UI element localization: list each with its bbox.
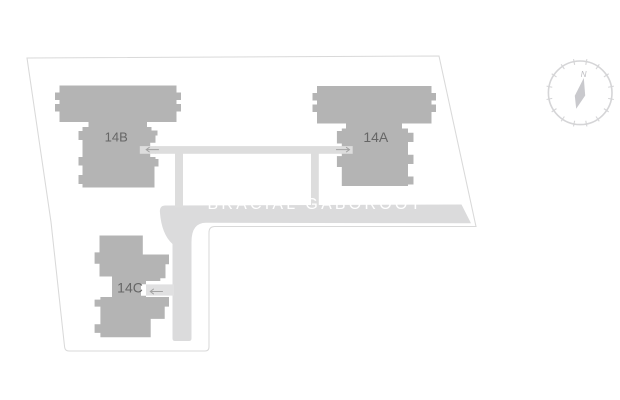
svg-text:14A: 14A (363, 129, 389, 145)
svg-text:14B: 14B (105, 130, 128, 145)
svg-text:N: N (581, 70, 587, 79)
svg-text:14C: 14C (117, 280, 143, 296)
svg-text:BRACIAL GABOROOT: BRACIAL GABOROOT (208, 196, 424, 213)
